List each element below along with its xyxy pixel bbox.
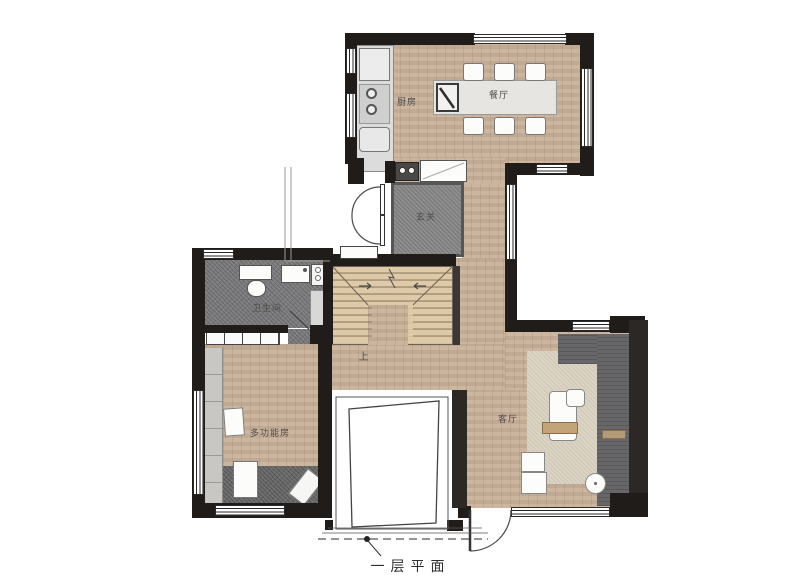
room-label-living: 客厅	[494, 412, 522, 425]
dining-chair	[463, 63, 484, 81]
wall	[310, 325, 333, 344]
washer-knob-icon	[315, 267, 321, 273]
window-symbol	[511, 507, 610, 517]
wall	[325, 520, 333, 530]
wall	[452, 390, 467, 508]
dining-chair	[525, 63, 546, 81]
sofa-arm-tray	[602, 430, 626, 439]
kitchen-sink	[359, 127, 390, 152]
dining-chair	[494, 63, 515, 81]
stairs-up-label: 上	[357, 348, 371, 363]
toilet-bowl	[247, 280, 266, 297]
high-chair	[436, 83, 459, 112]
wood-tray	[542, 422, 578, 434]
entry-door-leaf	[380, 215, 385, 246]
entry-door-arc	[352, 187, 380, 244]
wall	[629, 320, 648, 510]
courtyard-area	[325, 390, 465, 542]
floor-plan: 厨房 餐厅 玄关 卫生间 多功能房 客厅 上 一层平面	[0, 0, 800, 584]
wardrobe-strip	[205, 348, 223, 506]
room-label-multi: 多功能房	[240, 426, 300, 439]
wall	[205, 325, 288, 333]
shoe-cabinet	[340, 246, 378, 259]
fridge	[359, 48, 390, 81]
room-label-dining: 餐厅	[485, 88, 513, 101]
window-symbol	[581, 68, 593, 147]
stair-side-wall	[453, 266, 460, 345]
window-symbol	[346, 93, 356, 138]
coffee-table-small	[566, 389, 585, 407]
hob-knob-icon	[399, 167, 406, 174]
side-table	[521, 472, 547, 494]
burner-icon	[366, 104, 377, 115]
hob-knob-icon	[408, 167, 415, 174]
side-table	[521, 452, 545, 472]
porch-step-lines	[285, 167, 330, 261]
dining-chair	[463, 117, 484, 135]
wall	[318, 325, 332, 518]
room-label-kitchen: 厨房	[393, 95, 421, 108]
plan-caption: 一层平面	[328, 556, 493, 576]
window-symbol	[215, 505, 285, 516]
storage-cabinet-row	[206, 331, 280, 345]
window-symbol	[193, 390, 204, 495]
bath-door-tile	[288, 329, 310, 344]
window-symbol	[203, 249, 234, 259]
washer-knob-icon	[315, 275, 321, 281]
dining-chair	[494, 117, 515, 135]
wall	[447, 520, 463, 531]
wall	[610, 493, 648, 517]
wall	[323, 258, 333, 328]
seat	[233, 461, 258, 498]
window-symbol	[536, 164, 568, 174]
toilet-tank	[239, 265, 272, 280]
window-symbol	[572, 321, 610, 331]
wall	[345, 33, 475, 45]
wall	[348, 158, 364, 184]
faucet-icon	[303, 268, 307, 272]
wall	[385, 161, 395, 183]
living-room-door-arc	[470, 510, 511, 551]
entry-door-leaf	[380, 184, 385, 215]
window-symbol	[506, 184, 516, 260]
dining-chair	[525, 117, 546, 135]
window-symbol	[346, 48, 356, 74]
pass-through-counter	[420, 160, 467, 182]
room-label-entry: 玄关	[412, 210, 440, 223]
stair-void	[368, 305, 408, 345]
window-symbol	[473, 34, 567, 44]
pouf-dot-icon	[594, 482, 597, 485]
room-label-bathroom: 卫生间	[239, 301, 295, 314]
burner-icon	[366, 88, 377, 99]
